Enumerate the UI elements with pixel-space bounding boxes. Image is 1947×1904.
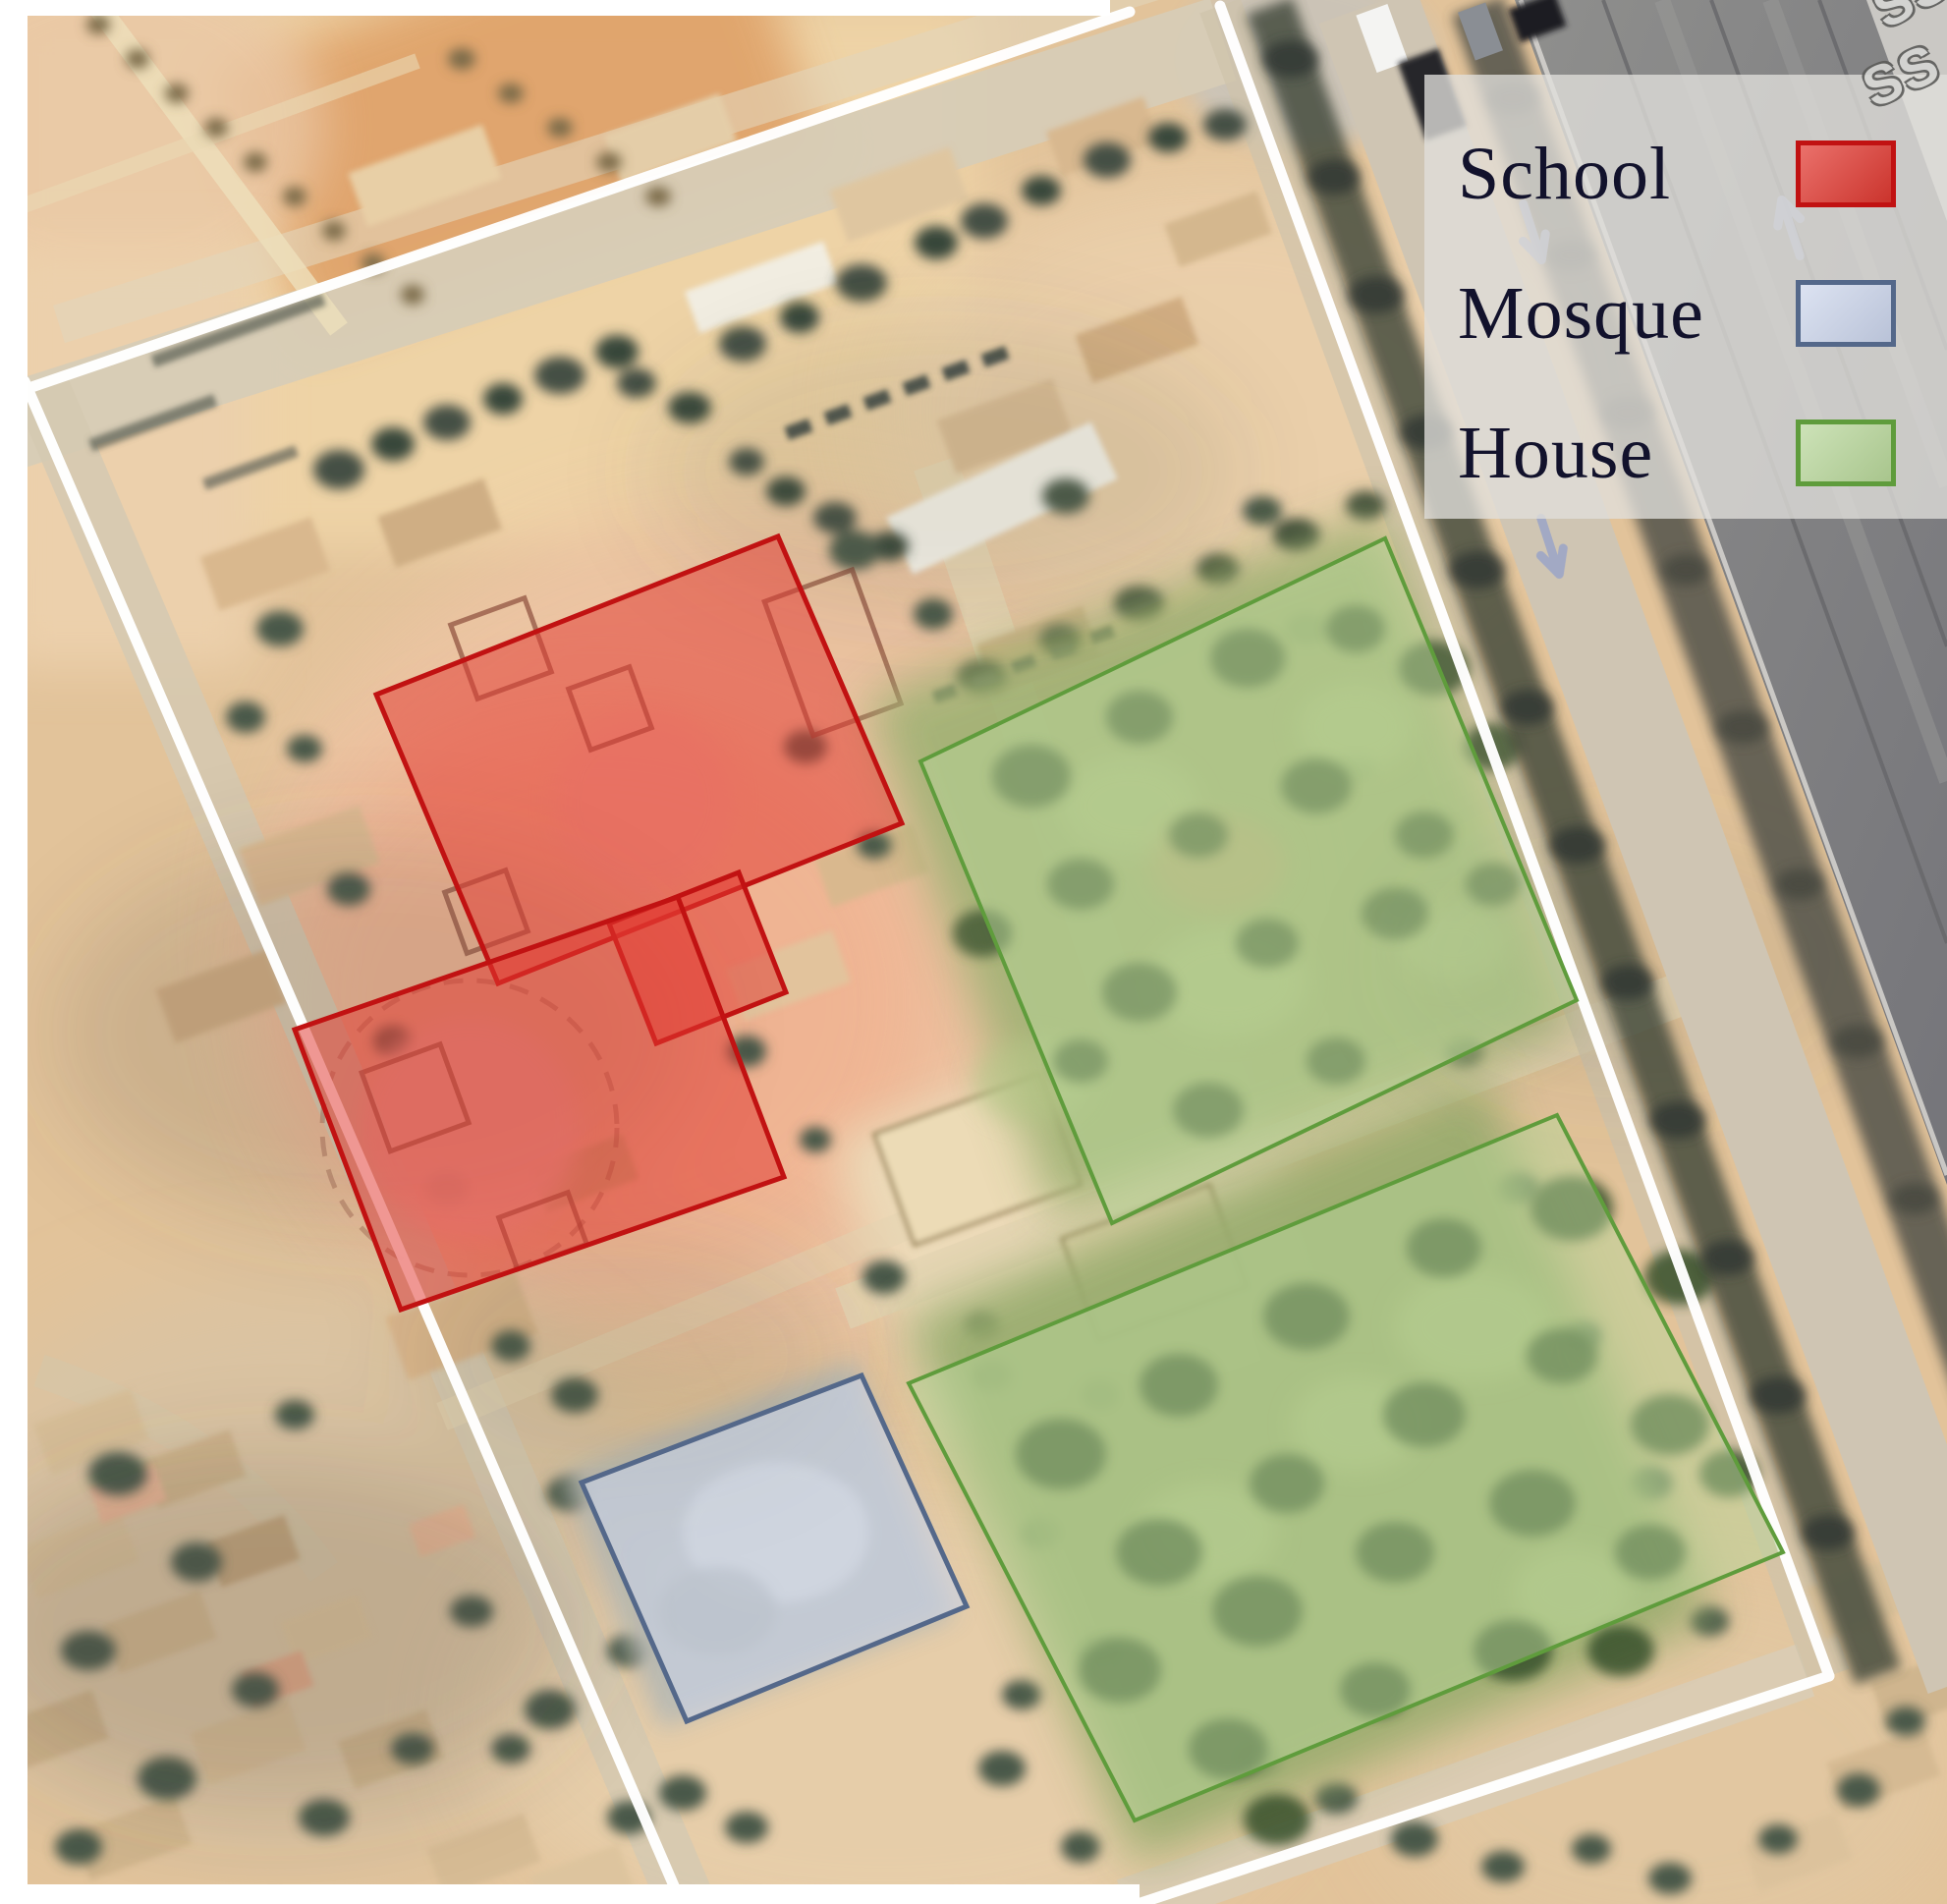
legend: School Mosque House (1424, 75, 1947, 519)
legend-row-mosque: Mosque (1424, 244, 1947, 383)
legend-row-house: House (1424, 383, 1947, 523)
school-color-swatch (1796, 140, 1896, 207)
mosque-color-swatch (1796, 280, 1896, 347)
legend-row-school: School (1424, 104, 1947, 244)
legend-label-mosque: Mosque (1458, 276, 1796, 351)
house-color-swatch (1796, 420, 1896, 486)
legend-label-house: House (1458, 416, 1796, 490)
legend-label-school: School (1458, 137, 1796, 211)
satellite-map-figure: School Mosque House SS SS (0, 0, 1947, 1904)
